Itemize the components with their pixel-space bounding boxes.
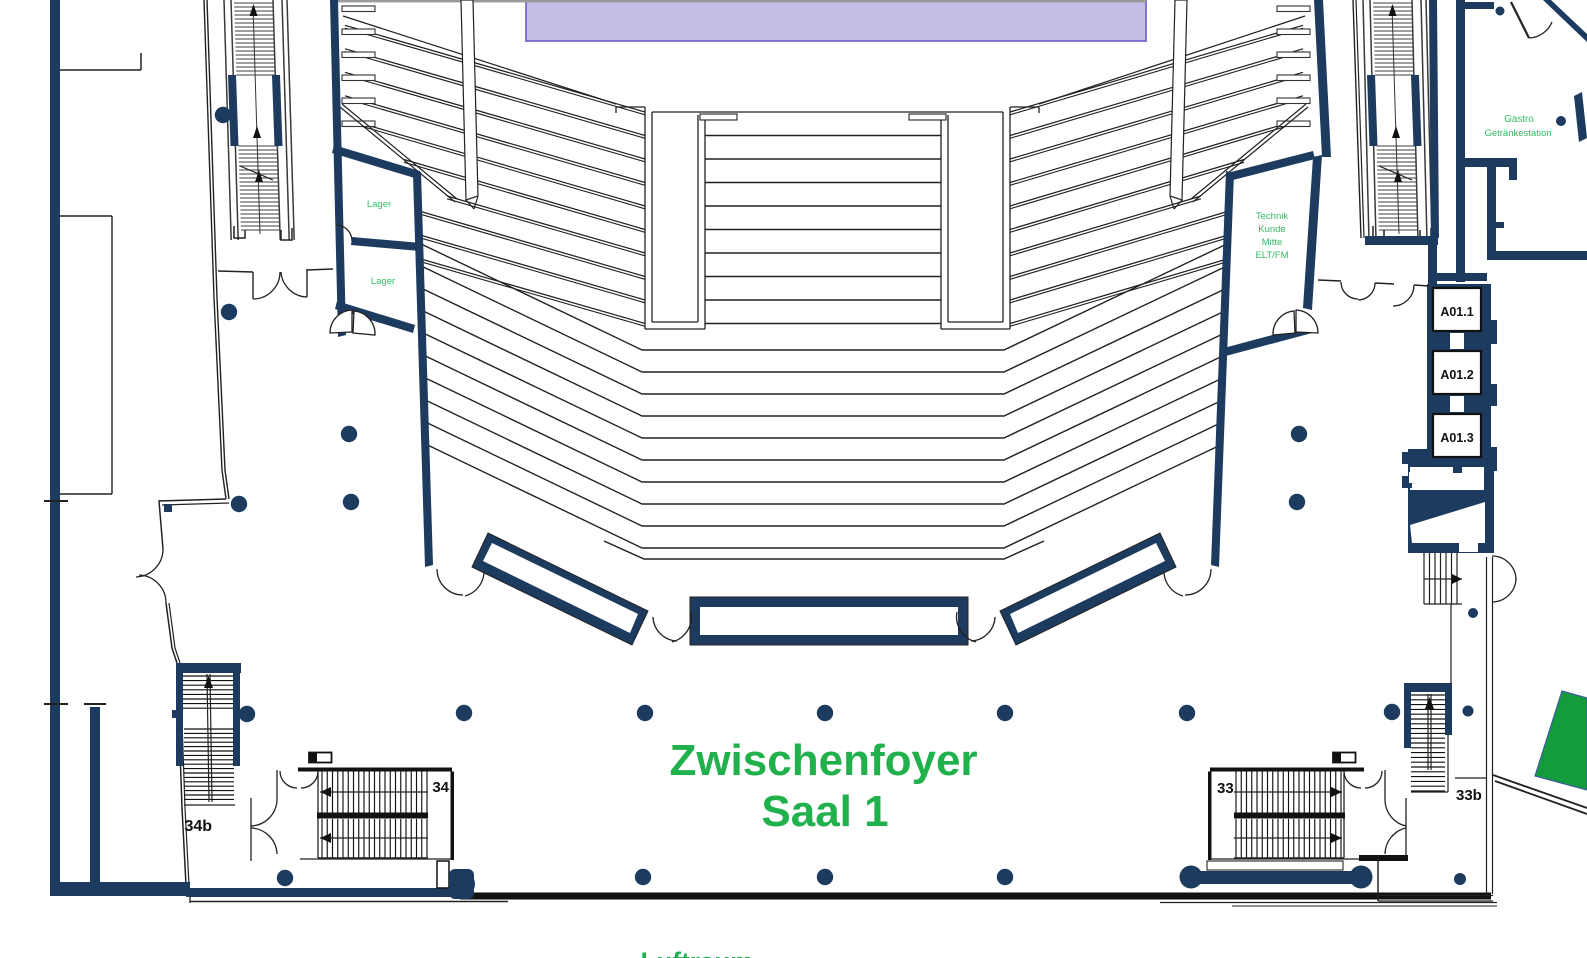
svg-text:Getränkestation: Getränkestation — [1484, 128, 1551, 139]
svg-text:Lager: Lager — [371, 276, 395, 287]
svg-text:A01.2: A01.2 — [1440, 368, 1473, 382]
svg-text:A01.3: A01.3 — [1440, 431, 1473, 445]
svg-text:Luftraum: Luftraum — [641, 947, 754, 958]
svg-text:33b: 33b — [1456, 787, 1482, 804]
svg-text:34: 34 — [432, 779, 449, 796]
svg-text:A01.1: A01.1 — [1440, 305, 1473, 319]
svg-text:Lager: Lager — [367, 199, 391, 210]
svg-text:Gastro: Gastro — [1504, 114, 1534, 125]
svg-text:34b: 34b — [185, 818, 213, 835]
svg-text:Saal 1: Saal 1 — [761, 787, 888, 836]
svg-text:Zwischenfoyer: Zwischenfoyer — [669, 736, 977, 785]
svg-text:33: 33 — [1217, 780, 1234, 797]
